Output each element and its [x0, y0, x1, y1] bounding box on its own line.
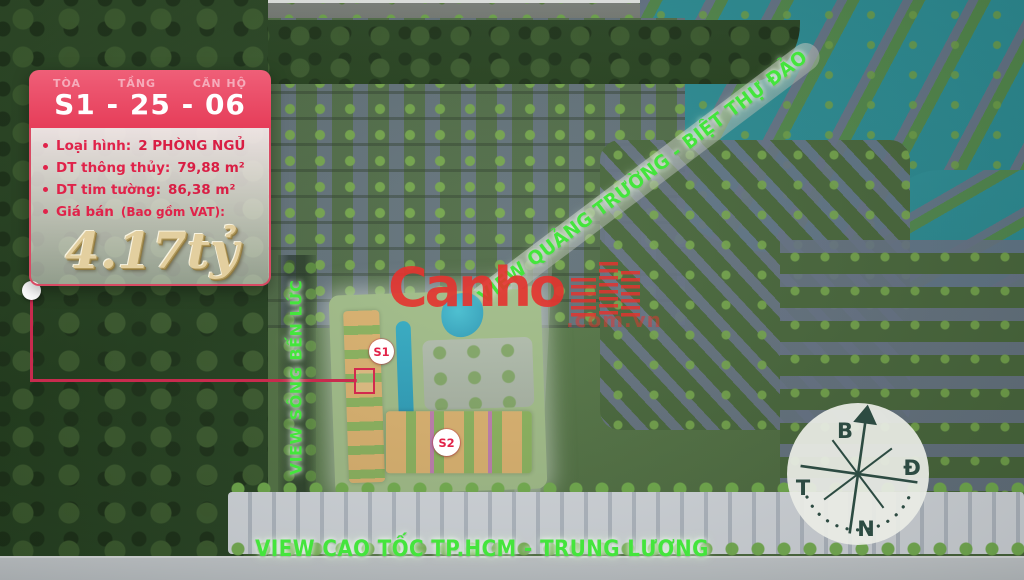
- s1-marker: S1: [369, 339, 394, 364]
- detail-label: DT thông thủy:: [56, 160, 170, 176]
- compass-label-west: T: [796, 476, 811, 500]
- watermark: Canho .com.vn: [388, 262, 640, 318]
- bullet-icon: [43, 187, 48, 192]
- detail-row-type: Loại hình: 2 PHÒNG NGỦ: [43, 138, 261, 154]
- card-header: TÒA TẦNG CĂN HỘ S1 - 25 - 06: [29, 70, 271, 128]
- detail-label: Giá bán: [56, 204, 114, 220]
- s1-tower-roof: [343, 310, 385, 483]
- price-row: 4.17tỷ: [43, 226, 261, 276]
- price-value: 4.17tỷ: [65, 221, 239, 280]
- callout-line-horizontal: [30, 379, 357, 382]
- watermark-brand: Canho: [388, 262, 563, 313]
- watermark-domain: .com.vn: [566, 308, 662, 332]
- listing-card: TÒA TẦNG CĂN HỘ S1 - 25 - 06 Loại hình: …: [29, 70, 271, 286]
- unit-highlight-box: [354, 368, 375, 394]
- bullet-icon: [43, 209, 48, 214]
- detail-value: 79,88 m²: [177, 160, 244, 176]
- central-plaza: [422, 337, 534, 411]
- detail-row-net-area: DT thông thủy: 79,88 m²: [43, 160, 261, 176]
- compass-label-east: Đ: [903, 456, 921, 480]
- card-body: Loại hình: 2 PHÒNG NGỦ DT thông thủy: 79…: [29, 128, 271, 286]
- view-river-label: VIEW SÔNG BẾN LỨC: [287, 278, 306, 478]
- detail-label: Loại hình:: [56, 138, 131, 154]
- bullet-icon: [43, 165, 48, 170]
- detail-label: DT tim tường:: [56, 182, 161, 198]
- detail-row-gross-area: DT tim tường: 86,38 m²: [43, 182, 261, 198]
- detail-value: 2 PHÒNG NGỦ: [138, 138, 245, 154]
- compass-rose: B Đ T N: [786, 394, 934, 562]
- detail-row-price: Giá bán (Bao gồm VAT):: [43, 204, 261, 220]
- callout-line-vertical: [30, 296, 33, 382]
- compass-label-south: N: [857, 517, 875, 541]
- detail-label-suffix: (Bao gồm VAT):: [121, 205, 225, 219]
- unit-code: S1 - 25 - 06: [29, 90, 271, 121]
- bullet-icon: [43, 143, 48, 148]
- s2-marker: S2: [433, 429, 460, 456]
- compass-label-north: B: [837, 419, 853, 443]
- detail-value: 86,38 m²: [168, 182, 235, 198]
- aerial-masterplan-view: S1 S2 VIEW QUẢNG TRƯỜNG - BIỆT THỰ ĐẢO V…: [0, 0, 1024, 580]
